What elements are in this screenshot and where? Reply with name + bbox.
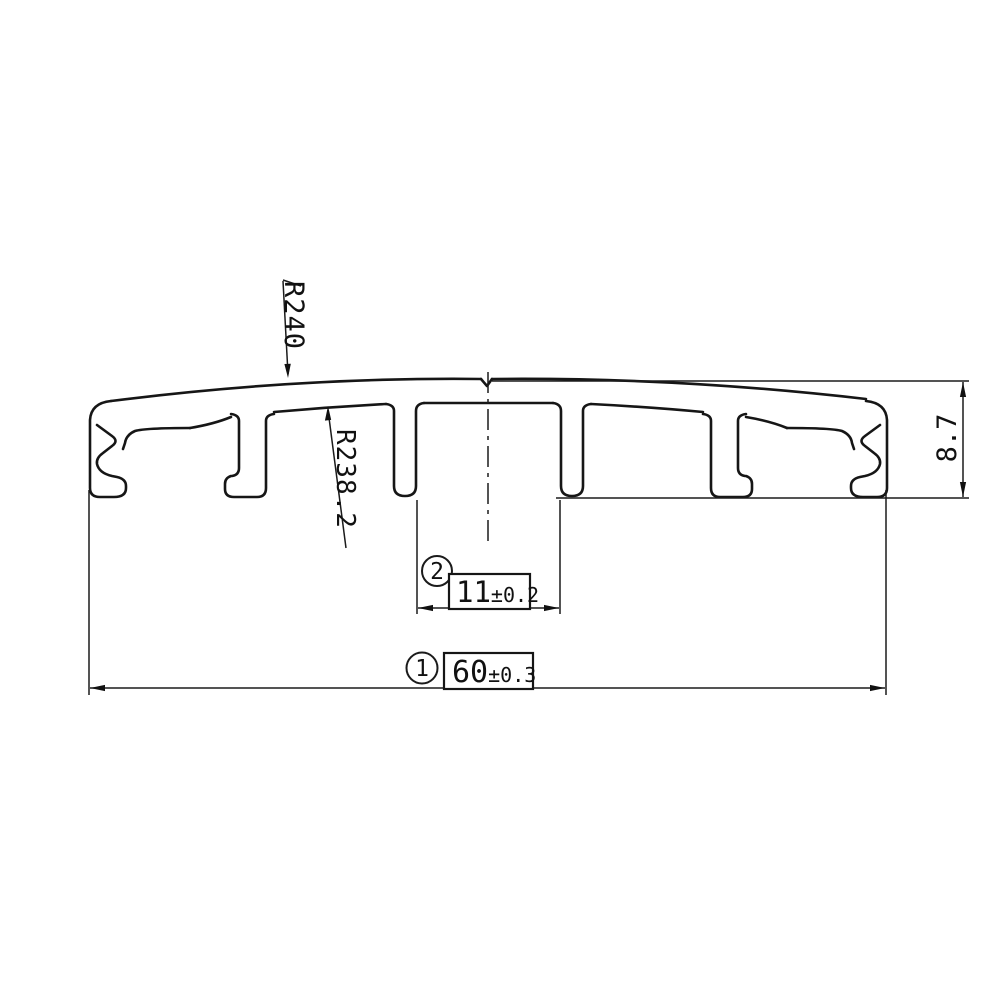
extrusion-profile	[90, 379, 969, 498]
width-dim-tolerance: ±0.3	[488, 663, 536, 687]
profile-drawing-canvas: R240 R238.2 8.7 2 11±0.2 1	[0, 0, 1000, 1000]
slot-dim-tolerance: ±0.2	[491, 583, 539, 607]
profile-outer-curve-left	[111, 379, 481, 401]
leader-r240-arrowhead	[284, 364, 290, 378]
radius-outer-label: R240	[278, 281, 309, 350]
slot-arrow-right	[544, 605, 559, 611]
right-end-inner-curl	[787, 428, 854, 449]
slot-dim-value: 11	[456, 575, 491, 609]
height-label: 8.7	[932, 414, 963, 463]
profile-right-end	[787, 401, 887, 497]
height-arrow-top	[960, 382, 966, 397]
dimension-slot-width: 2 11±0.2	[417, 500, 560, 614]
width-dim-value: 60	[452, 655, 488, 690]
profile-right-hook	[703, 414, 752, 497]
right-end-outline	[851, 401, 887, 497]
technical-drawing-page: R240 R238.2 8.7 2 11±0.2 1	[0, 0, 1000, 1000]
profile-left-end	[90, 401, 190, 497]
leader-radius-outer: R240	[278, 280, 309, 378]
height-arrow-bottom	[960, 482, 966, 497]
slot-balloon-number: 2	[430, 559, 444, 585]
profile-left-center-wall	[386, 403, 424, 496]
width-arrow-left	[90, 685, 105, 691]
left-end-inner-curl	[123, 428, 190, 449]
dimension-height: 8.7	[492, 381, 969, 497]
left-end-outline	[90, 401, 126, 497]
slot-arrow-left	[418, 605, 433, 611]
apex-notch	[481, 379, 492, 386]
profile-left-hook	[225, 414, 274, 497]
leader-radius-inner: R238.2	[325, 406, 360, 548]
width-balloon-number: 1	[415, 656, 429, 682]
profile-outer-curve-right	[492, 379, 866, 399]
radius-inner-label: R238.2	[330, 429, 360, 529]
profile-right-center-wall	[553, 403, 591, 496]
width-arrow-right	[870, 685, 885, 691]
